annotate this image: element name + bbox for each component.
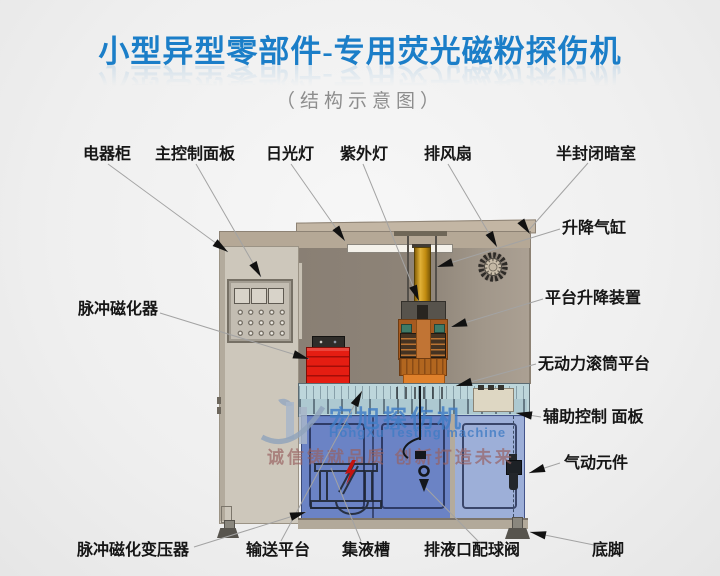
head-center-column xyxy=(416,320,431,358)
aux-button xyxy=(478,385,484,390)
head-detail-block xyxy=(401,324,412,333)
label-pulse-magnetizing-transformer: 脉冲磁化变压器 xyxy=(77,542,189,559)
coil-block xyxy=(400,333,417,358)
pulse-magnetizer-box xyxy=(306,347,350,387)
label-drain-ball-valve: 排液口配球阀 xyxy=(424,542,520,559)
machine-foot-right xyxy=(505,528,530,539)
lift-guide-rod xyxy=(407,236,409,303)
schematic-page: 小型异型零部件-专用荧光磁粉探伤机 小型异型零部件-专用荧光磁粉探伤机 （结构示… xyxy=(0,0,720,576)
watermark-brand-en: HongXu Testing machine xyxy=(329,425,506,440)
head-detail-block xyxy=(434,324,445,333)
panel-button-grid xyxy=(235,307,285,337)
label-main-control-panel: 主控制面板 xyxy=(155,146,235,163)
coil-block xyxy=(429,333,446,358)
machine-bottom-frame xyxy=(298,518,528,529)
label-fluorescent-lamp: 日光灯 xyxy=(266,146,314,163)
label-auxiliary-control-panel: 辅助控制 面板 xyxy=(543,409,643,426)
aux-button xyxy=(488,385,494,390)
watermark-slogan: 诚信铸就品质 创新打造未来 xyxy=(267,443,515,468)
panel-display xyxy=(234,288,250,304)
auxiliary-control-panel-box xyxy=(473,388,514,412)
cabinet-hinge xyxy=(217,407,221,414)
fluorescent-lamp-bar xyxy=(347,244,453,253)
lift-guide-rod xyxy=(435,236,437,303)
label-exhaust-fan: 排风扇 xyxy=(424,146,472,163)
aux-button xyxy=(498,385,504,390)
cabinet-side-edge xyxy=(220,247,225,521)
label-electrical-cabinet: 电器柜 xyxy=(83,146,131,163)
lamp-mount-bracket xyxy=(394,231,447,236)
watermark-logo-bar xyxy=(299,407,307,444)
label-machine-feet: 底脚 xyxy=(592,542,624,559)
machine-foot-left xyxy=(217,528,239,538)
magnetizing-head-upper xyxy=(398,319,448,360)
label-liquid-collection-tank: 集液槽 xyxy=(342,542,390,559)
label-lift-cylinder: 升降气缸 xyxy=(562,220,626,237)
page-subtitle: （结构示意图） xyxy=(0,86,720,113)
main-control-panel xyxy=(227,279,293,343)
pneumatic-filter-bowl xyxy=(509,473,518,490)
panel-display xyxy=(268,288,284,304)
watermark-logo-bar xyxy=(286,402,294,439)
label-platform-lift-device: 平台升降装置 xyxy=(545,290,641,307)
cabinet-hinge xyxy=(217,397,221,404)
label-conveyor-platform: 输送平台 xyxy=(246,542,310,559)
label-pulse-magnetizer: 脉冲磁化器 xyxy=(78,301,158,318)
lift-cylinder-body xyxy=(414,247,431,305)
panel-display xyxy=(251,288,267,304)
label-semi-enclosed-darkroom: 半封闭暗室 xyxy=(556,146,636,163)
label-pneumatic-components: 气动元件 xyxy=(564,455,628,472)
label-unpowered-roller-platform: 无动力滚筒平台 xyxy=(538,356,650,373)
label-uv-lamp: 紫外灯 xyxy=(340,146,388,163)
hanging-rollers xyxy=(396,387,450,399)
